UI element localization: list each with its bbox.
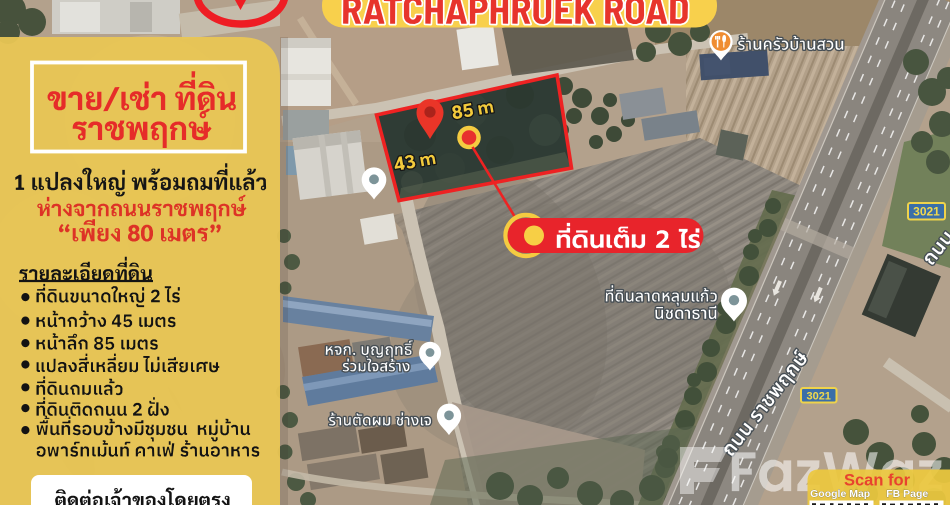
svg-text:Google Map: Google Map <box>810 488 870 500</box>
svg-text:3021: 3021 <box>913 205 940 219</box>
svg-text:3021: 3021 <box>806 390 830 402</box>
svg-text:Scan for: Scan for <box>844 472 911 490</box>
svg-text:FB Page: FB Page <box>886 488 928 500</box>
